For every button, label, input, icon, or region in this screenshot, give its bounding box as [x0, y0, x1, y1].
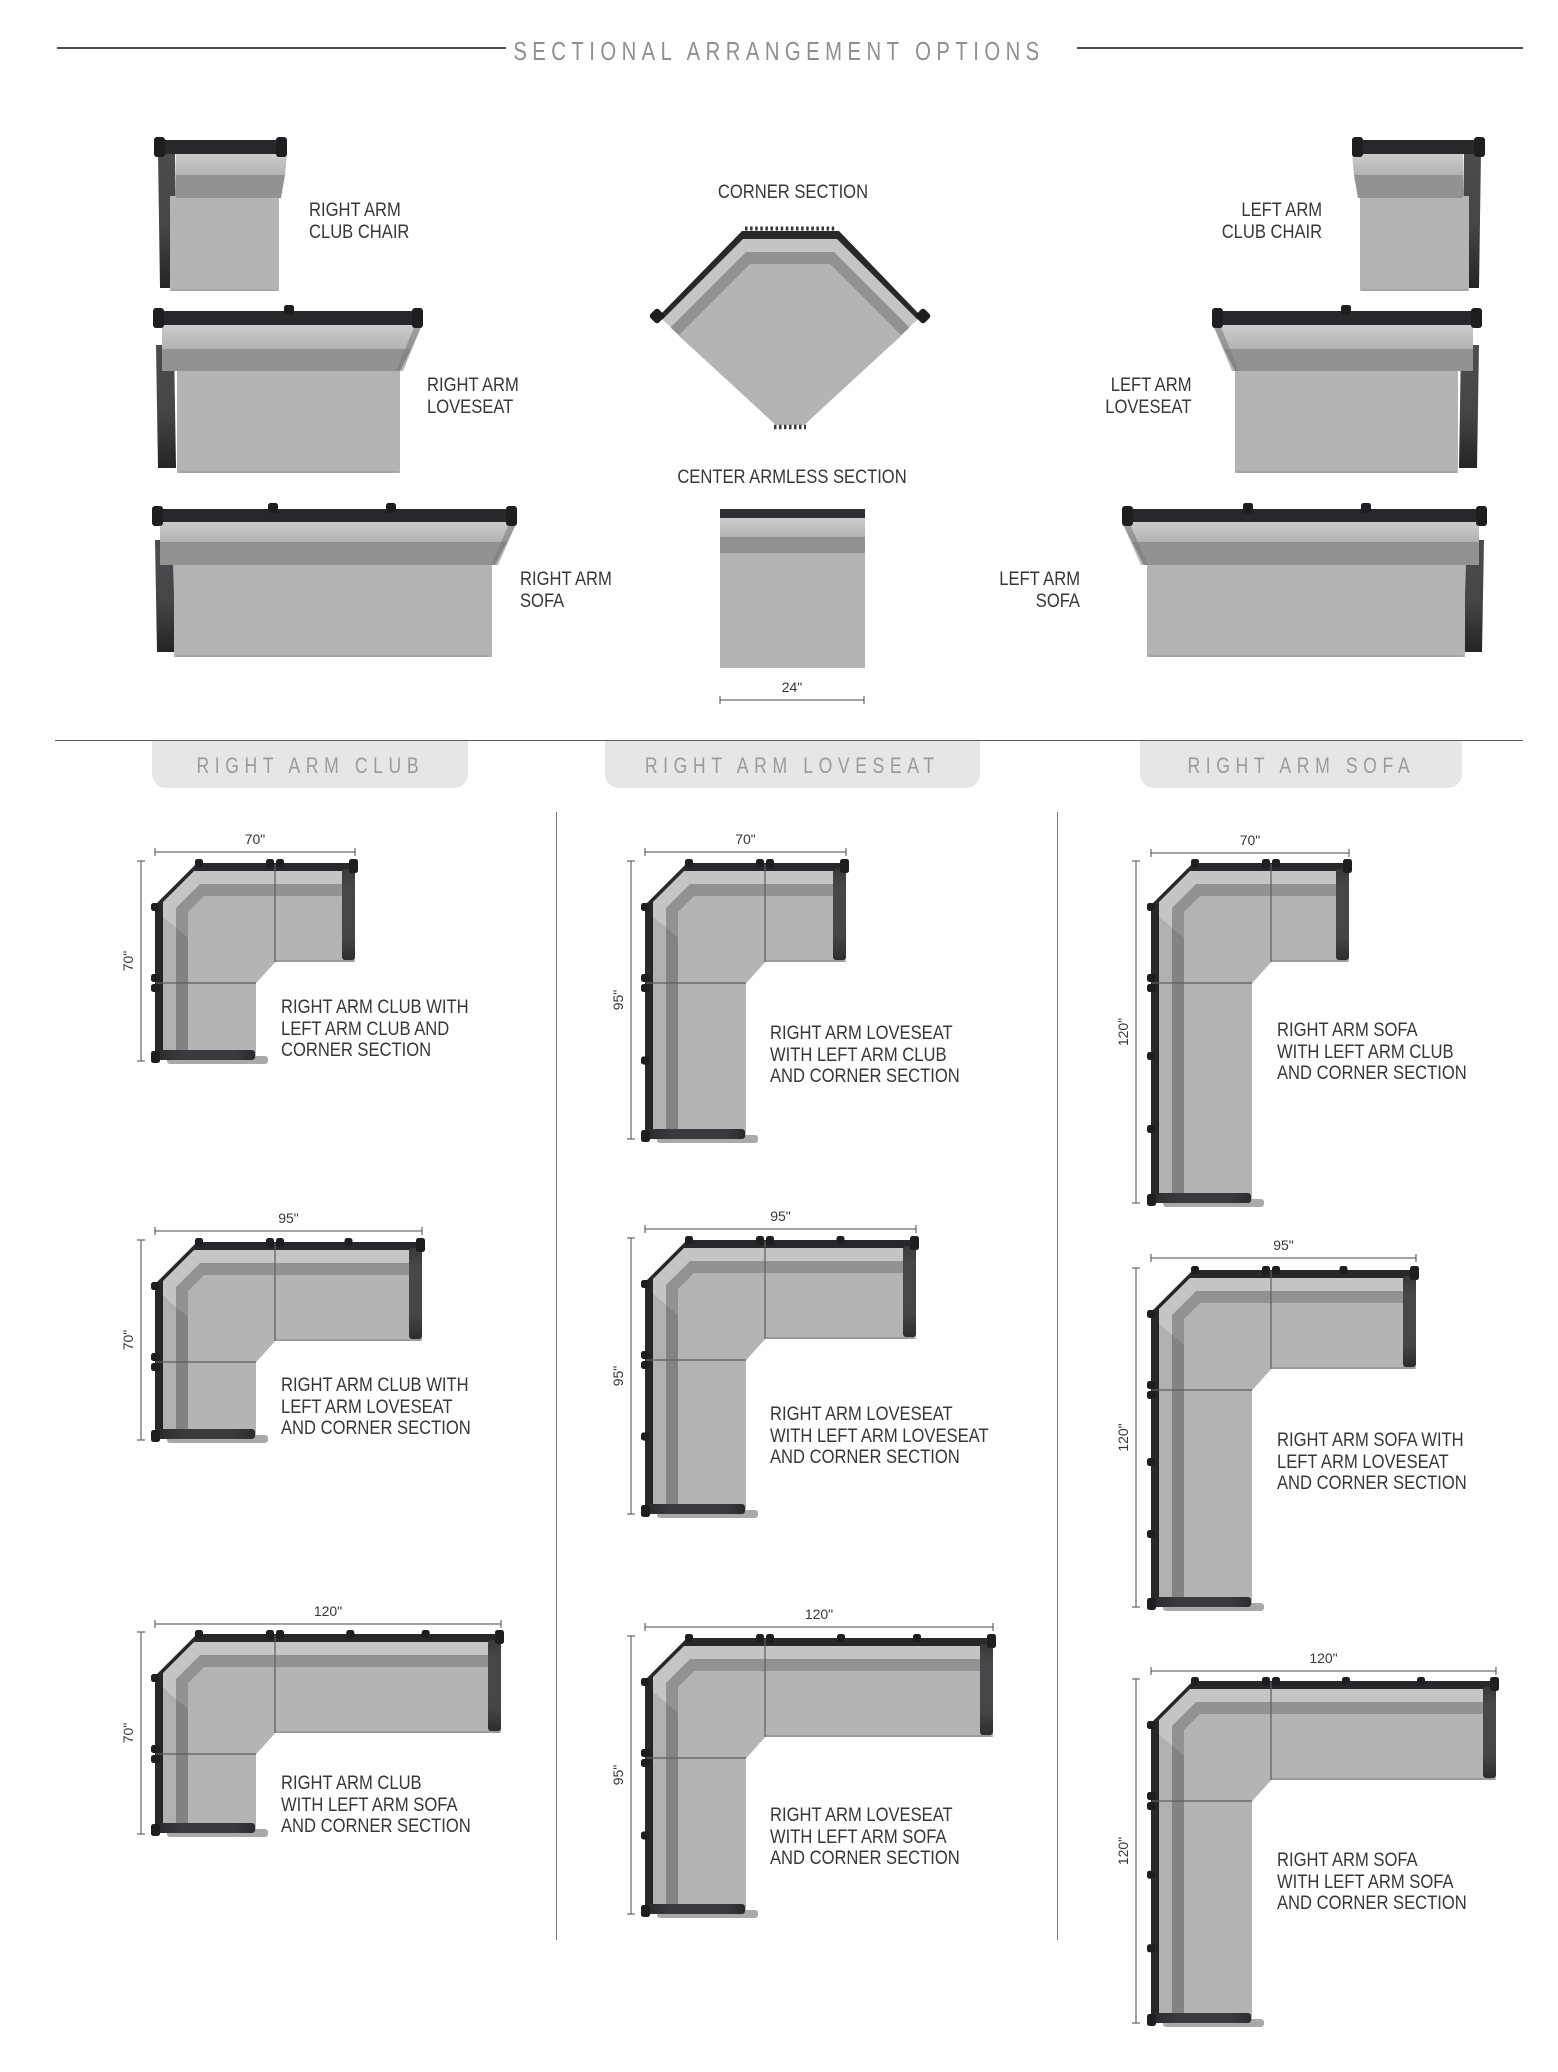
svg-text:95": 95": [610, 990, 626, 1011]
svg-text:120": 120": [314, 1603, 342, 1619]
svg-text:120": 120": [805, 1606, 833, 1622]
svg-text:120": 120": [1309, 1650, 1337, 1666]
svg-text:95": 95": [278, 1210, 299, 1226]
svg-text:95": 95": [610, 1765, 626, 1786]
svg-text:70": 70": [120, 1723, 136, 1744]
svg-text:70": 70": [120, 951, 136, 972]
svg-text:70": 70": [1240, 832, 1261, 848]
svg-text:120": 120": [1115, 1423, 1131, 1451]
svg-text:120": 120": [1115, 1018, 1131, 1046]
svg-text:24": 24": [782, 679, 803, 695]
svg-text:70": 70": [120, 1330, 136, 1351]
svg-text:120": 120": [1115, 1837, 1131, 1865]
svg-text:70": 70": [245, 831, 266, 847]
svg-text:95": 95": [610, 1366, 626, 1387]
svg-text:70": 70": [735, 831, 756, 847]
svg-text:95": 95": [770, 1208, 791, 1224]
svg-text:95": 95": [1273, 1237, 1294, 1253]
